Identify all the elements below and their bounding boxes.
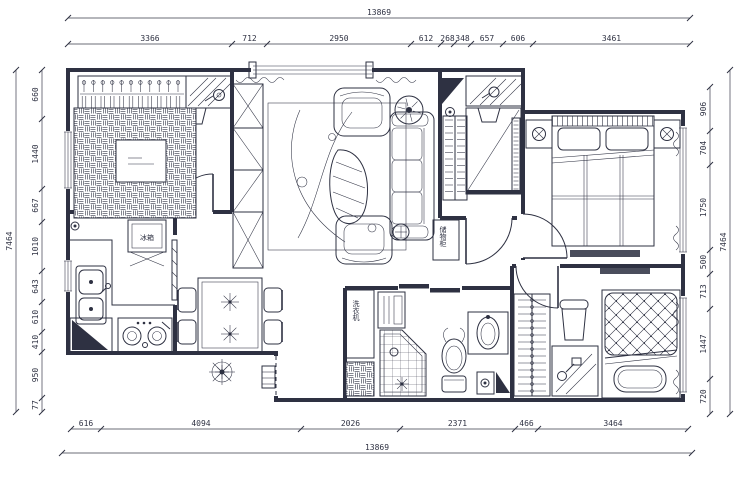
corner-shelf	[442, 78, 464, 104]
dim-label: 77	[31, 400, 40, 410]
rug	[268, 103, 406, 250]
dim-label: 13869	[367, 8, 391, 17]
floor-mat	[346, 362, 374, 396]
dim-label: 500	[699, 255, 708, 270]
dim-label: 2371	[448, 419, 467, 428]
door-study	[466, 218, 512, 264]
fan-table	[395, 96, 423, 124]
dim-label: 3461	[602, 34, 621, 43]
curtain-right	[376, 78, 416, 83]
nightstand-left	[526, 120, 552, 148]
floor-plan: 冰箱	[0, 0, 740, 482]
single-bed	[602, 290, 680, 398]
dim-label: 4094	[191, 419, 210, 428]
counter	[68, 240, 175, 305]
hallway: 储物柜	[433, 220, 459, 260]
study	[442, 76, 522, 200]
dining-chair	[264, 288, 282, 312]
dimension-left: 66014406671010643610410950777464	[5, 67, 45, 415]
dim-label: 348	[455, 34, 470, 43]
dim-label: 643	[31, 279, 40, 294]
floor-drain-unit	[477, 372, 510, 394]
desk-chair	[560, 300, 588, 340]
dim-label: 712	[242, 34, 257, 43]
dim-label: 410	[31, 335, 40, 350]
dim-label: 466	[519, 419, 534, 428]
bedroom2	[514, 268, 680, 398]
living-room	[233, 78, 434, 269]
laundry-cabinet: 洗衣机	[346, 290, 374, 358]
bookshelf	[443, 116, 467, 200]
dim-label: 7464	[5, 231, 14, 250]
dim-label: 610	[31, 310, 40, 325]
dining-area	[178, 278, 282, 352]
desk-bed	[466, 108, 521, 194]
washing-machine	[378, 292, 405, 328]
plant	[209, 359, 235, 385]
table-plants	[221, 293, 239, 343]
master-bedroom	[526, 116, 680, 257]
dim-label: 657	[480, 34, 495, 43]
dim-label: 2026	[341, 419, 360, 428]
fridge: 冰箱	[128, 220, 166, 266]
bathroom: 洗衣机	[346, 290, 510, 396]
dim-label: 7464	[719, 232, 728, 251]
dimension-bottom: 616409420262371466346413869	[59, 419, 695, 456]
dim-label: 950	[31, 368, 40, 383]
door-master	[523, 214, 567, 258]
double-bed	[552, 116, 654, 246]
dim-label: 3464	[603, 419, 622, 428]
desk	[552, 346, 598, 396]
dim-label: 1447	[699, 334, 708, 353]
side-table	[393, 224, 409, 240]
dim-label: 13869	[365, 443, 389, 452]
window-kitchen-left	[64, 261, 72, 291]
dim-label: 704	[699, 141, 708, 156]
tatami-room	[74, 76, 232, 218]
wardrobe	[514, 294, 550, 396]
hatched-cabinet	[186, 76, 232, 108]
armchair-top	[334, 88, 390, 136]
hatched-cabinet	[466, 76, 522, 106]
door-bedroom2	[516, 266, 558, 308]
stove	[118, 318, 172, 352]
dim-label: 660	[31, 87, 40, 102]
dim-label: 720	[699, 389, 708, 404]
vanity	[468, 312, 508, 354]
dim-label: 906	[699, 102, 708, 117]
kitchen: 冰箱	[68, 220, 175, 352]
dim-label: 1010	[31, 237, 40, 256]
dim-label: 3366	[140, 34, 159, 43]
sofa	[390, 112, 434, 240]
entry	[209, 359, 235, 385]
dim-label: 1750	[699, 198, 708, 217]
dim-label: 667	[31, 198, 40, 213]
hall-cabinet-label: 储物柜	[439, 225, 447, 248]
dimension-top: 33667122950612268348657606346113869	[65, 8, 693, 47]
dining-chair	[264, 320, 282, 344]
washer-label: 洗衣机	[352, 299, 360, 322]
curtain-left	[236, 78, 284, 83]
dim-label: 2950	[329, 34, 348, 43]
dim-label: 616	[79, 419, 94, 428]
window-tatami-left	[64, 132, 72, 188]
storage-column	[233, 84, 263, 268]
bedside-rug	[570, 250, 640, 257]
shower	[380, 330, 426, 396]
dim-label: 713	[699, 284, 708, 299]
toilet	[442, 328, 466, 392]
dim-label: 1440	[31, 144, 40, 163]
fridge-label: 冰箱	[140, 233, 154, 242]
dim-label: 612	[419, 34, 434, 43]
dim-label: 606	[511, 34, 526, 43]
tatami-table	[116, 140, 166, 182]
dining-chair	[178, 320, 196, 344]
sink	[76, 266, 111, 324]
bedside-rug	[600, 268, 650, 274]
dim-label: 268	[440, 34, 455, 43]
dimension-right: 906704175050071314477207464	[699, 67, 733, 417]
